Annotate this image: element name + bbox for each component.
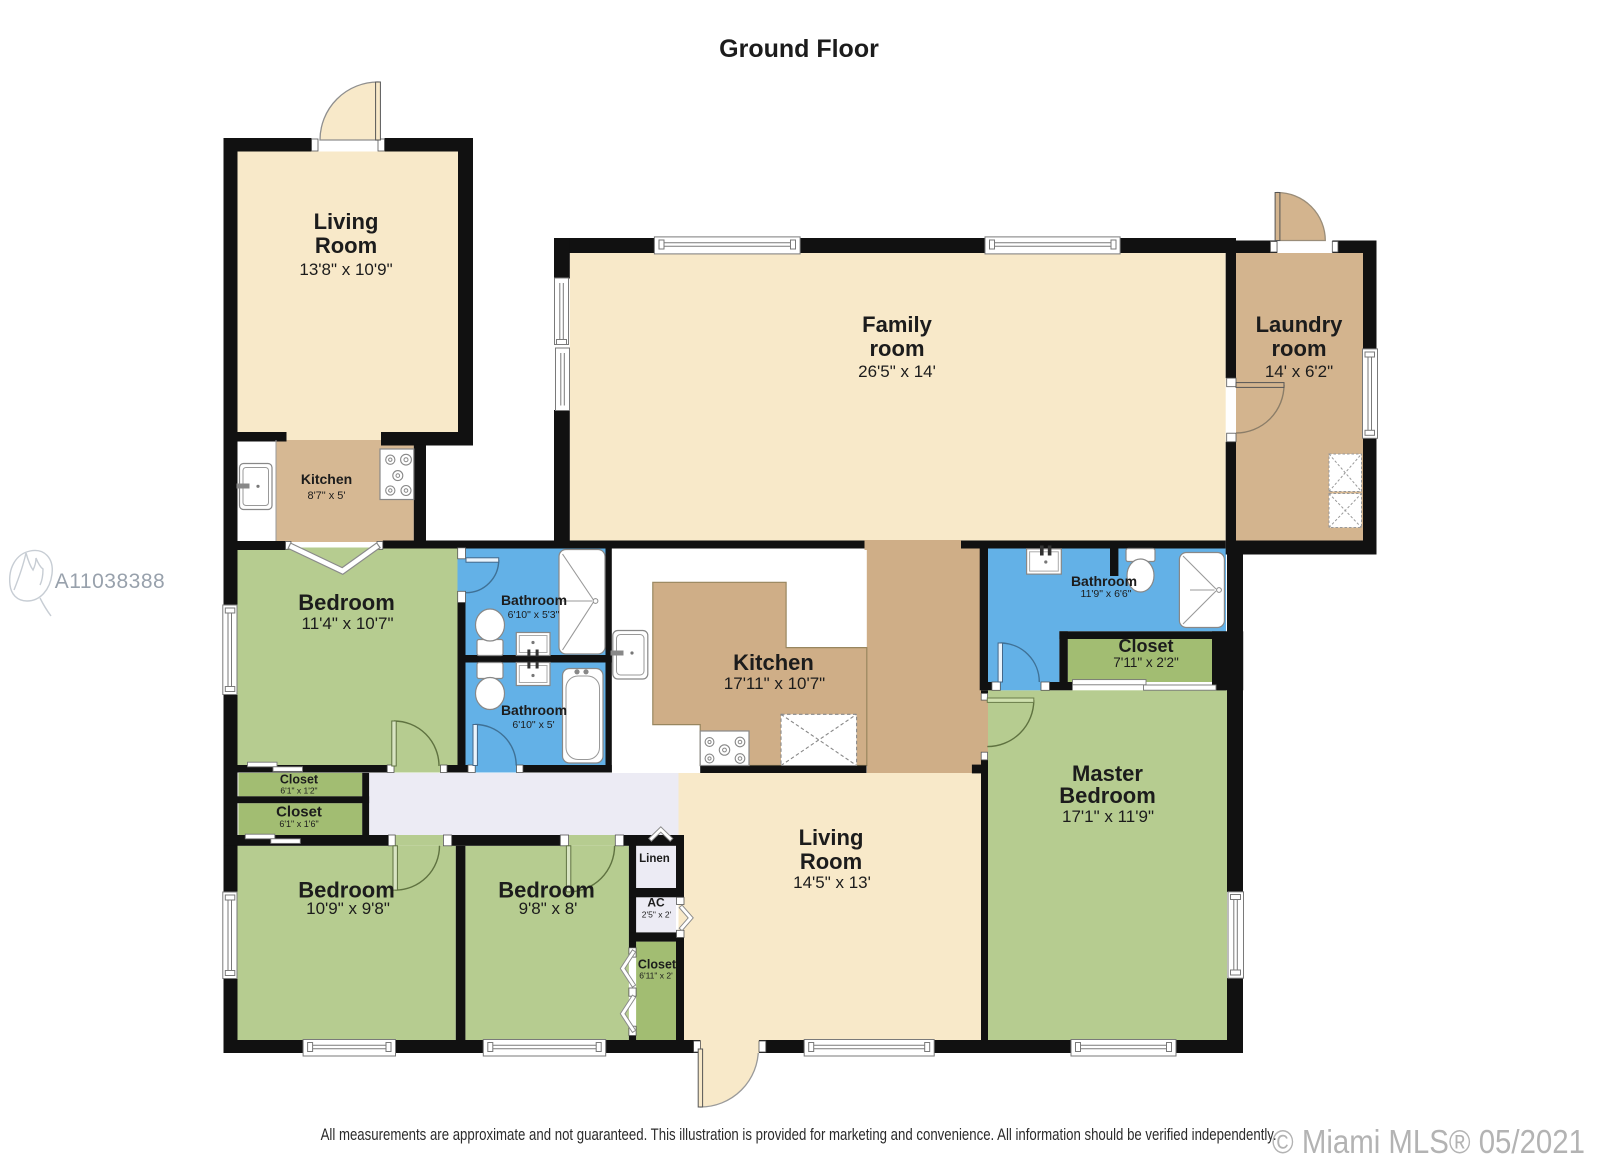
svg-text:11'9" x 6'6": 11'9" x 6'6" [1081,588,1132,600]
svg-text:room: room [870,336,925,361]
svg-text:7'11" x 2'2": 7'11" x 2'2" [1113,655,1179,670]
svg-text:2'5" x 2': 2'5" x 2' [642,910,672,920]
svg-text:Bedroom: Bedroom [298,590,395,615]
svg-text:17'1" x 11'9": 17'1" x 11'9" [1062,807,1154,826]
svg-text:6'1" x 1'6": 6'1" x 1'6" [279,819,318,829]
svg-text:8'7" x 5': 8'7" x 5' [307,490,345,502]
svg-text:Linen: Linen [639,853,670,865]
svg-text:14' x 6'2": 14' x 6'2" [1265,362,1333,381]
svg-text:6'10" x 5': 6'10" x 5' [512,719,554,731]
svg-text:Closet: Closet [1118,636,1173,656]
svg-text:6'11" x 2': 6'11" x 2' [639,971,673,981]
svg-text:26'5" x 14': 26'5" x 14' [858,362,936,381]
svg-text:Room: Room [800,849,862,874]
svg-text:Bathroom: Bathroom [501,702,567,718]
svg-text:9'8" x 8': 9'8" x 8' [519,899,578,918]
svg-text:Bathroom: Bathroom [1071,573,1137,589]
svg-text:Family: Family [862,312,932,337]
svg-text:13'8" x 10'9": 13'8" x 10'9" [299,260,392,279]
svg-text:6'10" x 5'3": 6'10" x 5'3" [508,609,560,621]
svg-text:17'11" x 10'7": 17'11" x 10'7" [724,674,825,693]
svg-text:Bathroom: Bathroom [501,592,567,608]
svg-text:All measurements are approxima: All measurements are approximate and not… [321,1125,1277,1144]
svg-text:Bedroom: Bedroom [1059,783,1156,808]
svg-text:14'5" x 13': 14'5" x 13' [793,873,871,892]
svg-text:Room: Room [315,233,377,258]
svg-text:© Miami MLS® 05/2021: © Miami MLS® 05/2021 [1272,1123,1585,1160]
svg-text:11'4" x 10'7": 11'4" x 10'7" [302,614,394,633]
svg-text:10'9" x 9'8": 10'9" x 9'8" [306,899,390,918]
svg-text:Closet: Closet [638,958,677,972]
svg-text:Closet: Closet [276,804,322,821]
svg-text:Kitchen: Kitchen [733,650,814,675]
svg-text:AC: AC [647,896,665,910]
svg-text:Laundry: Laundry [1256,312,1344,337]
svg-text:Closet: Closet [280,773,319,787]
svg-text:room: room [1272,336,1327,361]
svg-text:Living: Living [799,825,864,850]
svg-text:Living: Living [314,209,379,234]
svg-text:Ground Floor: Ground Floor [719,35,879,63]
svg-text:Kitchen: Kitchen [301,471,352,487]
svg-text:A11038388: A11038388 [55,570,165,593]
svg-text:6'1" x 1'2": 6'1" x 1'2" [280,786,317,796]
